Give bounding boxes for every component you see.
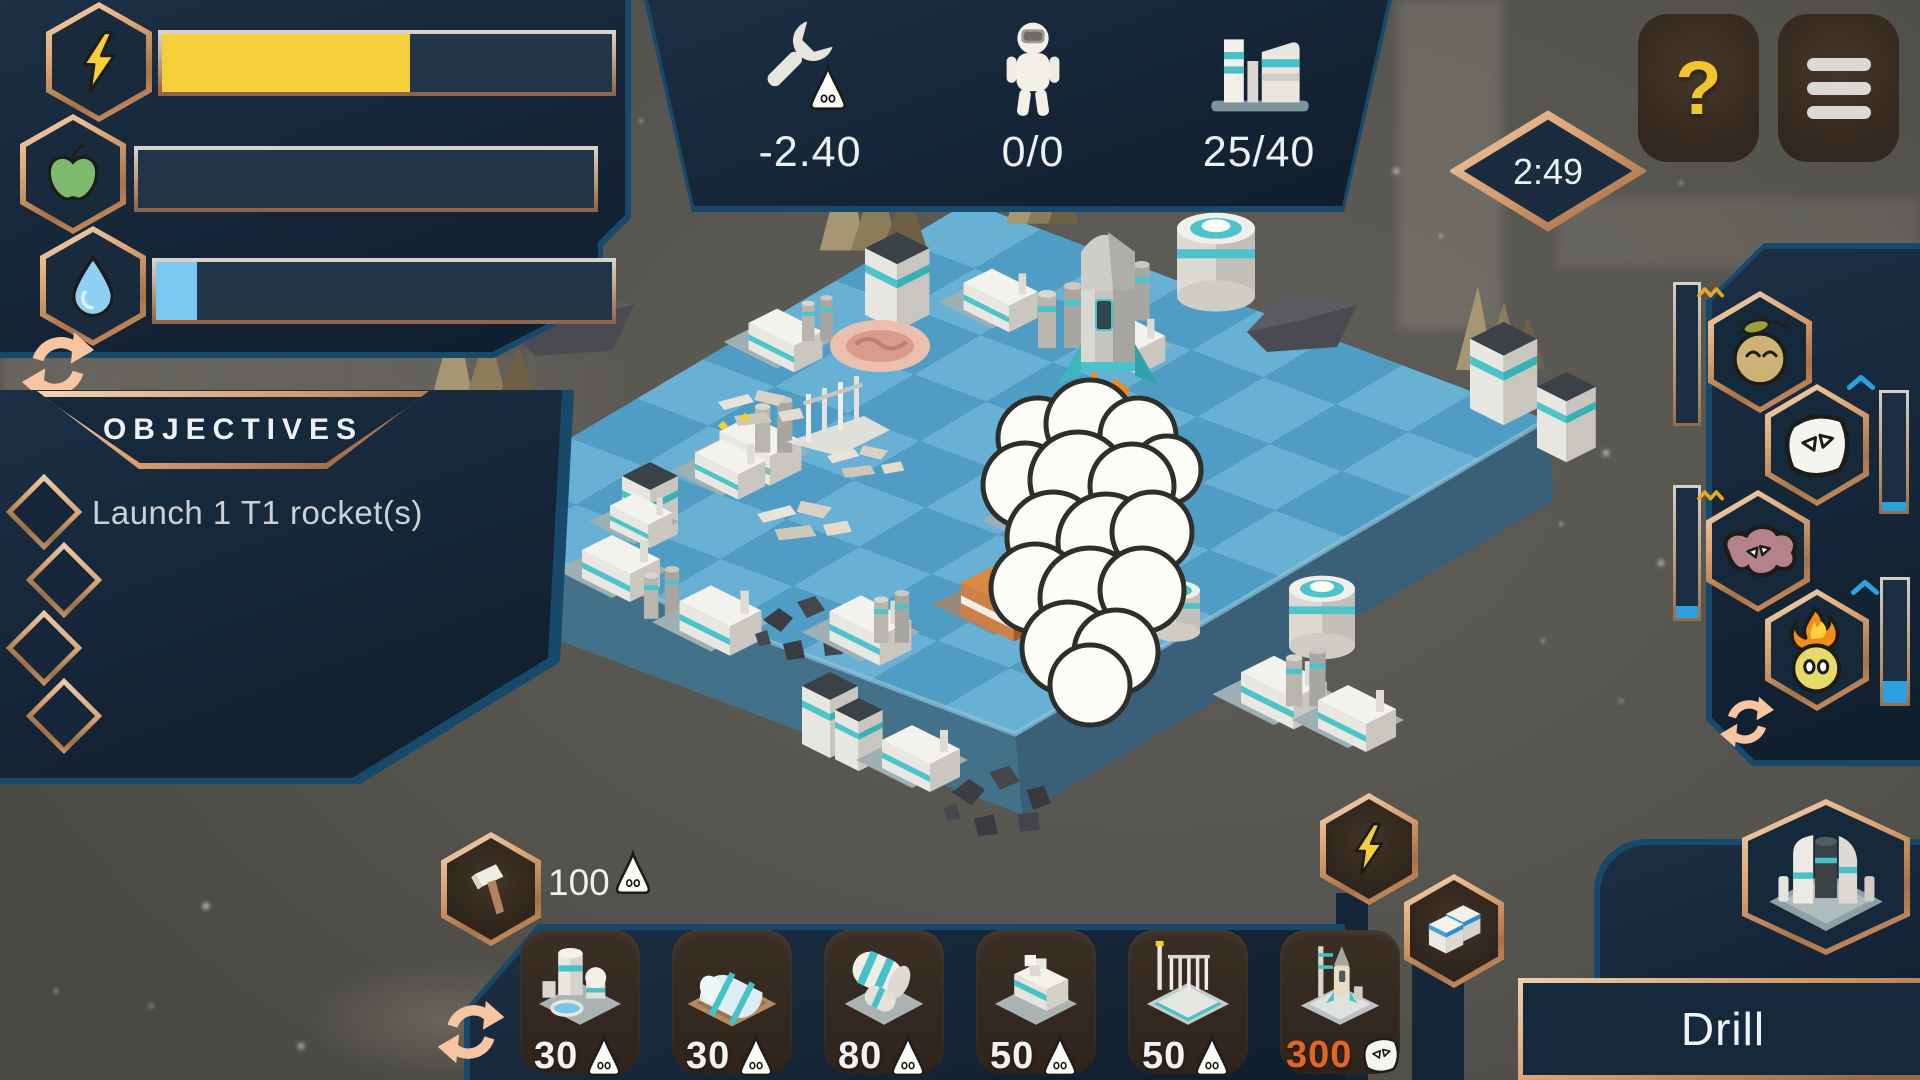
card-cost: 50 <box>990 1035 1034 1078</box>
refresh-icon <box>1716 692 1778 752</box>
astronauts-value: 0/0 <box>923 128 1143 177</box>
drill-building-icon <box>1762 817 1890 937</box>
launch-tower-building-icon <box>1140 934 1236 1030</box>
build-hammer-hex[interactable] <box>441 832 541 946</box>
selection-label-frame: Drill <box>1518 978 1920 1080</box>
refresh-icon <box>432 995 510 1069</box>
card-cost: 50 <box>1142 1035 1186 1078</box>
food-resource-hex <box>20 114 126 234</box>
wrench-pile-icon <box>758 18 862 122</box>
game-screen: OBJECTIVES Launch 1 T1 rocket(s) -2.40 0… <box>0 0 1920 1080</box>
creature-flame-hex[interactable] <box>1765 589 1869 711</box>
build-card-storage[interactable]: 80 <box>824 930 944 1074</box>
flame-meter <box>1880 577 1910 706</box>
creatures-cycle-button[interactable] <box>1716 692 1778 752</box>
flame-meter-fill <box>1883 681 1907 703</box>
astronaut-icon <box>1000 14 1066 122</box>
question-mark-icon: ? <box>1675 45 1721 132</box>
factory-building-icon <box>988 934 1084 1030</box>
hammer-icon <box>460 858 522 920</box>
blob-creature-icon <box>1714 516 1802 586</box>
water-bar <box>152 258 616 324</box>
timer-widget: 2:49 <box>1450 110 1646 232</box>
food-bar <box>134 146 598 212</box>
build-card-launch-tower[interactable]: 50 <box>1128 930 1248 1074</box>
buildings-used-value: 25/40 <box>1149 128 1369 177</box>
menu-button[interactable] <box>1778 14 1899 162</box>
sprout-meter <box>1673 282 1701 426</box>
build-card-factory[interactable]: 50 <box>976 930 1096 1074</box>
build-resource-count: 100 <box>548 862 610 904</box>
build-card-extractor[interactable]: 30 <box>520 930 640 1074</box>
energy-resource-hex <box>46 2 152 122</box>
apple-icon <box>40 141 106 207</box>
energy-bar-fill <box>162 34 410 92</box>
water-bar-fill <box>156 262 197 320</box>
energy-bar <box>158 30 616 96</box>
rocket-pad-building-icon <box>1292 934 1388 1030</box>
objectives-title: OBJECTIVES <box>103 413 363 447</box>
hamburger-icon <box>1807 47 1871 130</box>
sprout-creature-icon <box>1718 310 1802 394</box>
factory-count-icon <box>1206 22 1314 118</box>
blob-meter-fill <box>1676 606 1698 618</box>
build-card-rocket-pad[interactable]: 300 <box>1280 930 1400 1074</box>
timer-value: 2:49 <box>1450 151 1646 193</box>
mask-currency-icon <box>1356 1032 1406 1078</box>
help-button[interactable]: ? <box>1638 14 1759 162</box>
mask-meter <box>1879 390 1909 514</box>
creature-mask-hex[interactable] <box>1765 384 1869 506</box>
water-drop-icon <box>61 254 125 318</box>
pile-currency-icon <box>1040 1032 1080 1080</box>
storage-building-icon <box>836 934 932 1030</box>
selected-building-hex[interactable] <box>1742 799 1910 955</box>
card-cost: 300 <box>1286 1034 1352 1077</box>
research-category-hex[interactable] <box>1404 874 1504 988</box>
pile-currency-icon <box>888 1032 928 1080</box>
lightning-icon <box>1342 822 1396 876</box>
card-cost: 30 <box>534 1035 578 1078</box>
selection-label: Drill <box>1681 1002 1765 1056</box>
pile-currency-icon <box>736 1032 776 1080</box>
extractor-building-icon <box>532 934 628 1030</box>
mask-creature-icon <box>1776 404 1858 486</box>
card-cost: 30 <box>686 1035 730 1078</box>
pile-currency-icon <box>1192 1032 1232 1080</box>
books-icon <box>1421 898 1487 964</box>
flame-creature-icon <box>1775 604 1859 696</box>
build-card-greenhouse[interactable]: 30 <box>672 930 792 1074</box>
greenhouse-building-icon <box>684 934 780 1030</box>
stats-panel: -2.40 0/0 25/40 <box>648 0 1388 206</box>
build-cycle-button[interactable] <box>432 995 510 1069</box>
card-cost: 80 <box>838 1035 882 1078</box>
pile-currency-icon <box>584 1032 624 1080</box>
maintenance-rate-value: -2.40 <box>700 128 920 177</box>
pile-currency-icon <box>612 848 654 898</box>
mask-meter-fill <box>1882 502 1906 511</box>
blob-meter <box>1673 485 1701 621</box>
lightning-icon <box>67 30 131 94</box>
objective-text: Launch 1 T1 rocket(s) <box>92 494 522 532</box>
